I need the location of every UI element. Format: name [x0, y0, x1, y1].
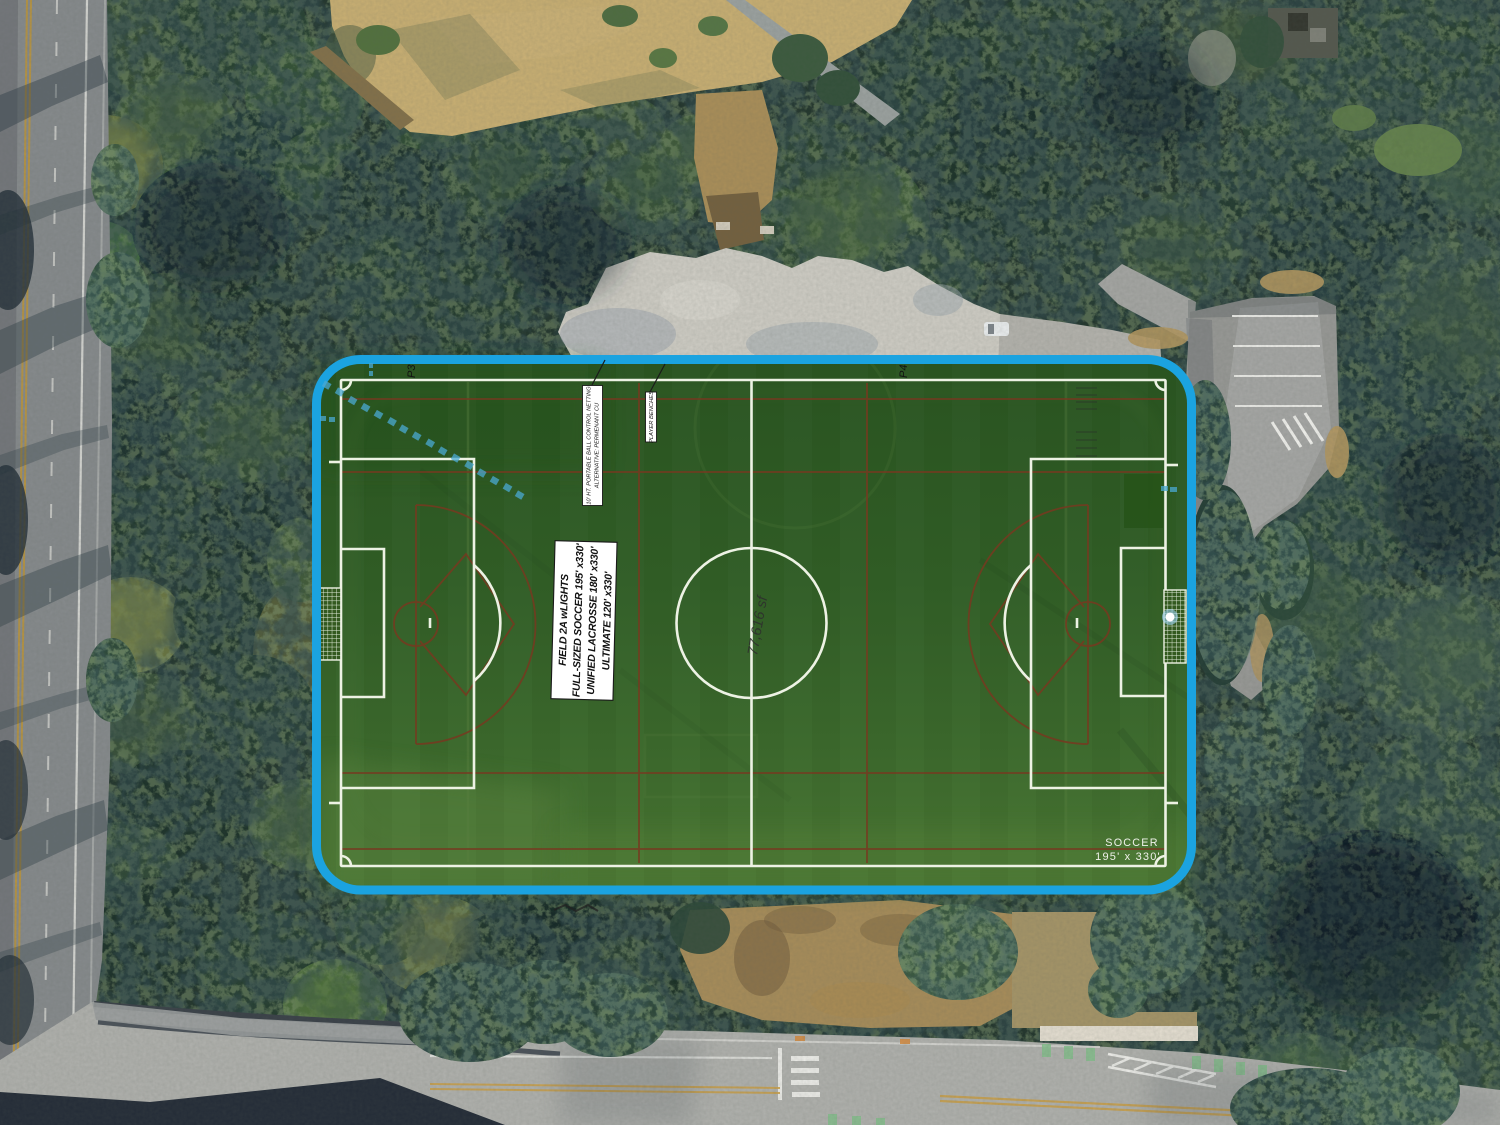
svg-text:P3: P3	[406, 364, 418, 378]
svg-text:195' x 330': 195' x 330'	[1095, 851, 1161, 863]
svg-text:PLAYER BENCHES: PLAYER BENCHES	[649, 391, 655, 443]
svg-text:P4: P4	[898, 365, 910, 378]
svg-text:SOCCER: SOCCER	[1105, 837, 1158, 849]
svg-text:ALTERNATIVE: PERMENANT CU: ALTERNATIVE: PERMENANT CU	[595, 402, 601, 489]
svg-text:10' HT. PORTABLE BALL CONTROL: 10' HT. PORTABLE BALL CONTROL NETTING	[586, 386, 592, 505]
